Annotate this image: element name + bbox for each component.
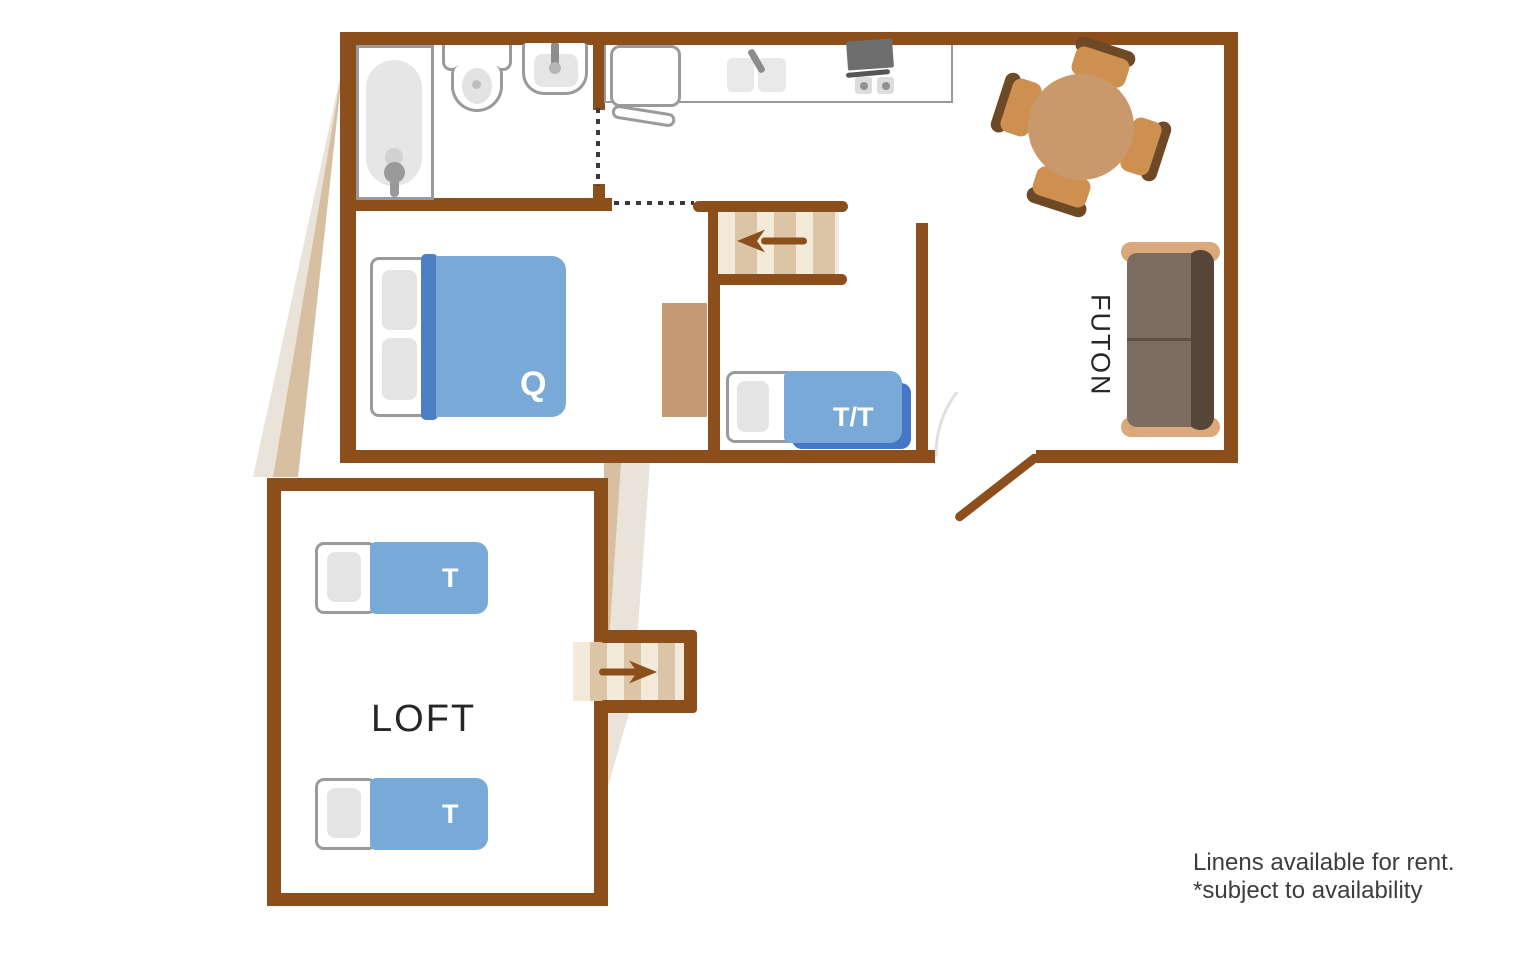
linens-note-line-1: Linens available for rent. <box>1193 849 1455 877</box>
door-swing-arc <box>936 392 957 456</box>
loft-projection-right-tail <box>604 713 629 790</box>
linens-note: Linens available for rent. *subject to a… <box>1193 849 1455 905</box>
floorplan-canvas: T T LOFT <box>0 0 1540 963</box>
linens-note-line-2: *subject to availability <box>1193 877 1455 905</box>
projection-shadows <box>0 0 1540 963</box>
